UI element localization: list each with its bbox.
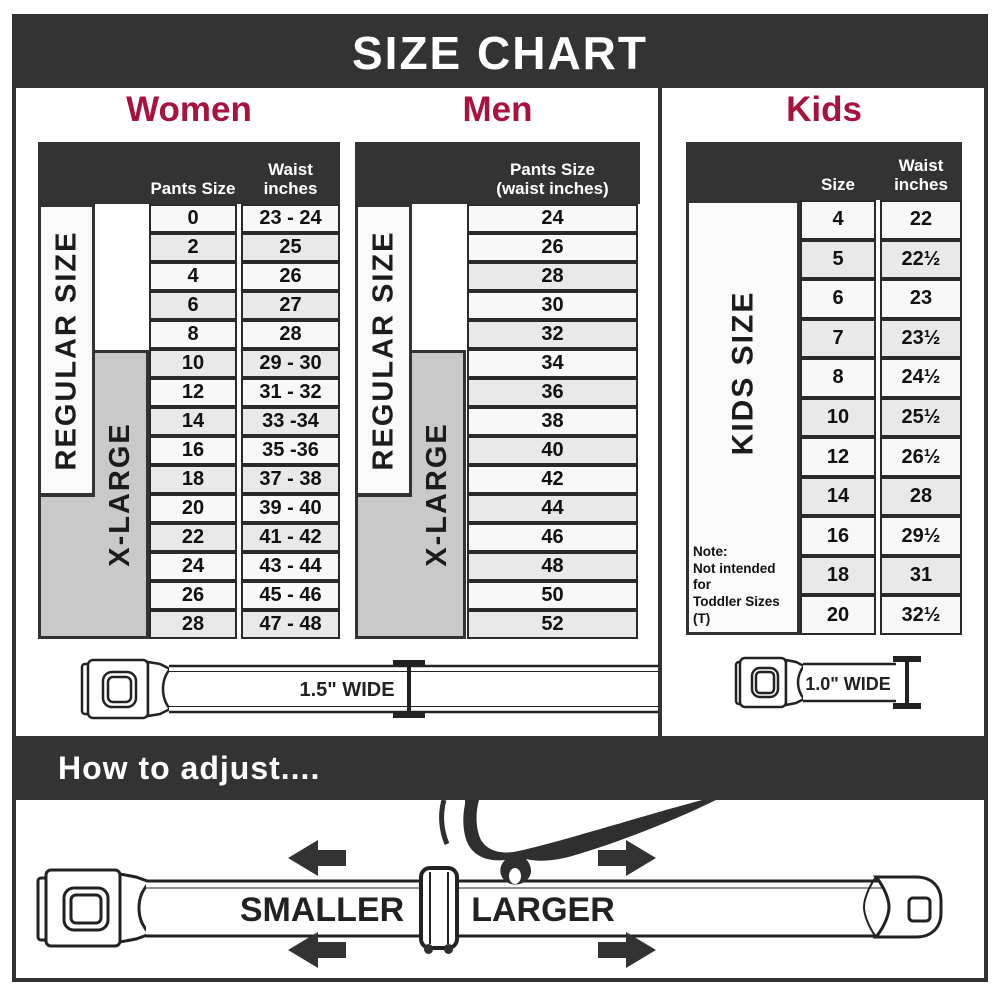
table-row: 2443 - 44: [149, 552, 340, 581]
table-row: 1226½: [800, 437, 962, 477]
seatbelt-buckle-icon: [38, 870, 150, 946]
table-cell-size: 44: [467, 494, 638, 523]
men-pants-size-header: Pants Size (waist inches): [467, 160, 638, 198]
women-xlarge-label: X-LARGE: [104, 422, 137, 567]
men-xlarge-label-wrap: X-LARGE: [409, 350, 466, 639]
women-waist-header: Waist inches: [241, 160, 340, 198]
seatbelt-buckle-icon: [736, 658, 804, 707]
women-regular-label: REGULAR SIZE: [50, 230, 83, 470]
table-row: 24: [467, 204, 638, 233]
table-cell-waist: 22½: [880, 240, 962, 280]
men-heading: Men: [355, 90, 640, 130]
table-cell-waist: 27: [241, 291, 340, 320]
table-cell-size: 12: [149, 378, 237, 407]
size-chart-body: Women Men Pants Size Waist inches X-LA: [16, 88, 984, 736]
kids-size-table: Size Waist inches KIDS SIZE Note: Not in…: [686, 142, 962, 635]
table-cell-size: 32: [467, 320, 638, 349]
men-regular-label: REGULAR SIZE: [367, 230, 400, 470]
table-row: 023 - 24: [149, 204, 340, 233]
table-cell-size: 16: [800, 516, 876, 556]
table-row: 46: [467, 523, 638, 552]
table-row: 2039 - 40: [149, 494, 340, 523]
adjust-illustration-area: SMALLER LARGER: [16, 800, 984, 978]
table-row: 1025½: [800, 398, 962, 438]
table-row: 225: [149, 233, 340, 262]
table-cell-size: 4: [800, 200, 876, 240]
hand-icon: [442, 800, 716, 885]
table-cell-waist: 23 - 24: [241, 204, 340, 233]
women-pants-size-header: Pants Size: [149, 179, 237, 198]
page-title: SIZE CHART: [352, 26, 648, 80]
adjust-illustration: SMALLER LARGER: [16, 800, 984, 978]
table-cell-size: 36: [467, 378, 638, 407]
women-regular-block: REGULAR SIZE: [38, 204, 95, 496]
table-row: 522½: [800, 240, 962, 280]
table-row: 50: [467, 581, 638, 610]
size-chart-frame: SIZE CHART Women Men Pants Size Waist in…: [12, 14, 988, 982]
table-cell-size: 0: [149, 204, 237, 233]
table-row: 48: [467, 552, 638, 581]
table-cell-size: 18: [149, 465, 237, 494]
table-cell-waist: 22: [880, 200, 962, 240]
table-cell-waist: 41 - 42: [241, 523, 340, 552]
table-row: 44: [467, 494, 638, 523]
table-cell-waist: 43 - 44: [241, 552, 340, 581]
kids-size-header: Size: [800, 175, 876, 194]
table-cell-size: 10: [149, 349, 237, 378]
table-cell-waist: 29½: [880, 516, 962, 556]
table-row: 623: [800, 279, 962, 319]
table-row: 42: [467, 465, 638, 494]
adult-belt-illustration: 1.5" WIDE: [76, 650, 658, 730]
table-cell-waist: 37 - 38: [241, 465, 340, 494]
table-cell-waist: 26½: [880, 437, 962, 477]
table-row: 1428: [800, 477, 962, 517]
kids-heading: Kids: [686, 90, 962, 130]
table-row: 2241 - 42: [149, 523, 340, 552]
table-cell-waist: 28: [241, 320, 340, 349]
table-cell-waist: 29 - 30: [241, 349, 340, 378]
table-row: 2645 - 46: [149, 581, 340, 610]
men-table-body: X-LARGE REGULAR SIZE 2426283032343638404…: [355, 204, 640, 639]
table-cell-size: 26: [149, 581, 237, 610]
table-row: 32: [467, 320, 638, 349]
how-to-adjust-bar: How to adjust....: [16, 736, 984, 800]
table-cell-size: 4: [149, 262, 237, 291]
table-cell-waist: 26: [241, 262, 340, 291]
table-cell-size: 18: [800, 556, 876, 596]
kids-table-header: Size Waist inches: [686, 142, 962, 200]
table-cell-size: 52: [467, 610, 638, 639]
table-cell-waist: 32½: [880, 595, 962, 635]
table-cell-size: 46: [467, 523, 638, 552]
kids-section: Kids Size Waist inches KIDS SIZE: [662, 88, 984, 736]
kids-waist-header: Waist inches: [880, 156, 962, 194]
table-row: 30: [467, 291, 638, 320]
table-row: 52: [467, 610, 638, 639]
table-cell-size: 38: [467, 407, 638, 436]
table-cell-size: 48: [467, 552, 638, 581]
men-xlarge-label: X-LARGE: [421, 422, 454, 567]
table-row: 723½: [800, 319, 962, 359]
table-row: 1837 - 38: [149, 465, 340, 494]
men-size-table: Pants Size (waist inches) X-LARGE REGULA…: [355, 142, 640, 639]
table-cell-size: 30: [467, 291, 638, 320]
table-cell-size: 8: [149, 320, 237, 349]
title-bar: SIZE CHART: [16, 18, 984, 88]
table-row: 627: [149, 291, 340, 320]
table-cell-waist: 24½: [880, 358, 962, 398]
arrow-right-icon: [598, 840, 656, 876]
belt-strap: [169, 666, 658, 712]
table-row: 38: [467, 407, 638, 436]
table-cell-size: 20: [800, 595, 876, 635]
table-cell-waist: 31 - 32: [241, 378, 340, 407]
table-cell-waist: 45 - 46: [241, 581, 340, 610]
women-xlarge-label-wrap: X-LARGE: [92, 350, 149, 639]
table-cell-waist: 25½: [880, 398, 962, 438]
table-row: 28: [467, 262, 638, 291]
women-rows: 023 - 242254266278281029 - 301231 - 3214…: [149, 204, 340, 639]
table-cell-waist: 23: [880, 279, 962, 319]
table-cell-size: 7: [800, 319, 876, 359]
table-cell-size: 24: [467, 204, 638, 233]
table-cell-size: 20: [149, 494, 237, 523]
women-heading: Women: [38, 90, 340, 130]
kids-size-block: KIDS SIZE Note: Not intended for Toddler…: [686, 200, 800, 635]
table-row: 2032½: [800, 595, 962, 635]
table-cell-size: 5: [800, 240, 876, 280]
table-cell-size: 28: [467, 262, 638, 291]
kids-table-body: KIDS SIZE Note: Not intended for Toddler…: [686, 200, 962, 635]
table-cell-waist: 31: [880, 556, 962, 596]
table-row: 34: [467, 349, 638, 378]
table-row: 828: [149, 320, 340, 349]
how-to-adjust-heading: How to adjust....: [58, 750, 320, 787]
table-cell-size: 12: [800, 437, 876, 477]
table-cell-waist: 28: [880, 477, 962, 517]
table-cell-size: 8: [800, 358, 876, 398]
table-cell-waist: 33 -34: [241, 407, 340, 436]
table-cell-waist: 25: [241, 233, 340, 262]
table-cell-size: 14: [149, 407, 237, 436]
table-cell-size: 2: [149, 233, 237, 262]
table-row: 824½: [800, 358, 962, 398]
table-cell-size: 28: [149, 610, 237, 639]
women-table-body: X-LARGE REGULAR SIZE 023 - 2422542662782…: [38, 204, 340, 639]
table-row: 426: [149, 262, 340, 291]
smaller-label: SMALLER: [240, 891, 404, 929]
kids-belt-width-label: 1.0" WIDE: [805, 674, 891, 694]
kids-size-label: KIDS SIZE: [726, 290, 760, 455]
table-cell-waist: 39 - 40: [241, 494, 340, 523]
table-cell-waist: 47 - 48: [241, 610, 340, 639]
women-size-table: Pants Size Waist inches X-LARGE REGULAR …: [38, 142, 340, 639]
kids-note: Note: Not intended for Toddler Sizes (T): [693, 544, 797, 628]
table-cell-size: 24: [149, 552, 237, 581]
table-row: 1231 - 32: [149, 378, 340, 407]
table-cell-size: 6: [149, 291, 237, 320]
men-regular-block: REGULAR SIZE: [355, 204, 412, 496]
table-cell-size: 22: [149, 523, 237, 552]
men-rows: 242628303234363840424446485052: [467, 204, 638, 639]
women-table-header: Pants Size Waist inches: [38, 142, 340, 204]
table-row: 1629½: [800, 516, 962, 556]
table-cell-size: 26: [467, 233, 638, 262]
table-cell-size: 42: [467, 465, 638, 494]
table-cell-size: 16: [149, 436, 237, 465]
table-row: 2847 - 48: [149, 610, 340, 639]
table-row: 1831: [800, 556, 962, 596]
table-row: 1029 - 30: [149, 349, 340, 378]
table-cell-waist: 23½: [880, 319, 962, 359]
table-row: 1635 -36: [149, 436, 340, 465]
table-cell-size: 34: [467, 349, 638, 378]
width-measure-icon: [893, 659, 921, 706]
table-cell-size: 10: [800, 398, 876, 438]
table-row: 40: [467, 436, 638, 465]
kids-belt-illustration: 1.0" WIDE: [726, 650, 996, 730]
adult-belt-width-label: 1.5" WIDE: [299, 679, 394, 701]
table-row: 1433 -34: [149, 407, 340, 436]
table-cell-waist: 35 -36: [241, 436, 340, 465]
men-table-header: Pants Size (waist inches): [355, 142, 640, 204]
adult-section: Women Men Pants Size Waist inches X-LA: [16, 88, 658, 736]
table-cell-size: 50: [467, 581, 638, 610]
kids-rows: 422522½623723½824½1025½1226½14281629½183…: [800, 200, 962, 635]
arrow-left-icon: [288, 840, 346, 876]
seatbelt-buckle-icon: [82, 660, 170, 718]
belt-slider-icon: [421, 868, 457, 954]
table-row: 36: [467, 378, 638, 407]
table-cell-size: 40: [467, 436, 638, 465]
table-row: 422: [800, 200, 962, 240]
larger-label: LARGER: [471, 891, 615, 929]
table-cell-size: 14: [800, 477, 876, 517]
table-cell-size: 6: [800, 279, 876, 319]
table-row: 26: [467, 233, 638, 262]
